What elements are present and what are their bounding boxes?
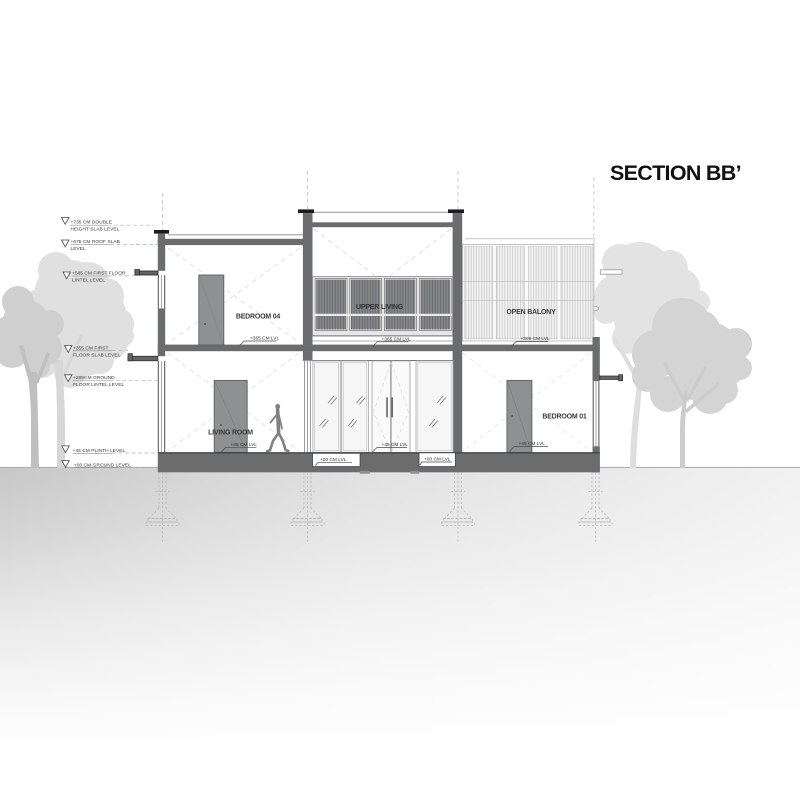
svg-text:+735 CM DOUBLE: +735 CM DOUBLE bbox=[71, 220, 113, 226]
svg-text:FLOOR SLAB LEVEL: FLOOR SLAB LEVEL bbox=[73, 352, 121, 358]
svg-text:LEVEL: LEVEL bbox=[71, 246, 87, 252]
svg-text:UPPER LIVING: UPPER LIVING bbox=[356, 304, 404, 311]
svg-text:BEDROOM 04: BEDROOM 04 bbox=[236, 313, 281, 320]
svg-text:+675 CM ROOF SLAB: +675 CM ROOF SLAB bbox=[71, 239, 120, 245]
svg-text:+585 CM FIRST FLOOR: +585 CM FIRST FLOOR bbox=[72, 271, 126, 277]
svg-text:OPEN BALONY: OPEN BALONY bbox=[506, 309, 556, 316]
svg-text:LINTEL LEVEL: LINTEL LEVEL bbox=[72, 278, 105, 284]
svg-text:LIVING ROOM: LIVING ROOM bbox=[208, 429, 253, 436]
svg-text:SECTION BB’: SECTION BB’ bbox=[610, 161, 741, 185]
svg-text:+355 CM FIRST: +355 CM FIRST bbox=[73, 345, 108, 351]
svg-text:BEDROOM 01: BEDROOM 01 bbox=[542, 413, 587, 420]
svg-text:+265CM GROUND: +265CM GROUND bbox=[73, 375, 115, 381]
svg-text:HEIGHT SLAB LEVEL: HEIGHT SLAB LEVEL bbox=[71, 227, 120, 233]
svg-text:FLOOR LINTEL LEVEL: FLOOR LINTEL LEVEL bbox=[73, 382, 124, 388]
